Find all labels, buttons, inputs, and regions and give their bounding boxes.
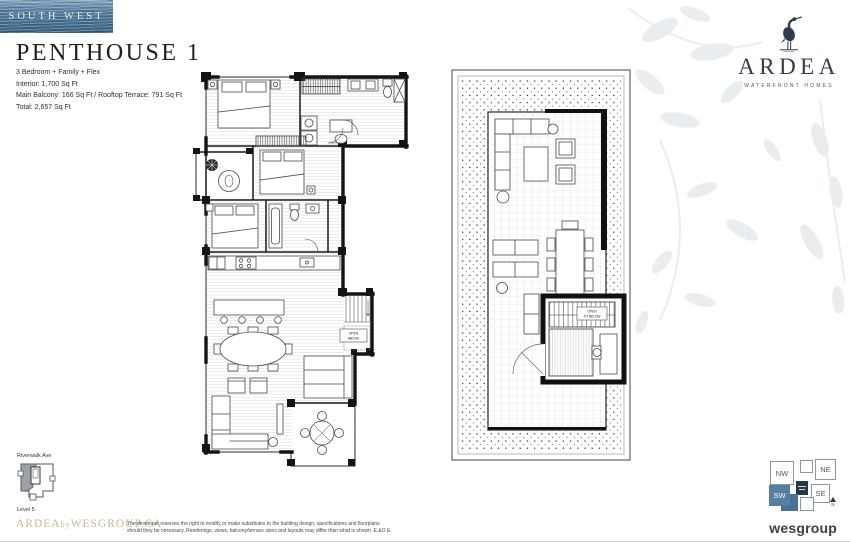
spec-bedrooms: 3 Bedroom + Family + Flex <box>16 67 182 79</box>
disclaimer: The developer reserves the right to modi… <box>127 521 407 535</box>
building-small-south <box>800 497 814 511</box>
page-title: PENTHOUSE 1 <box>16 40 202 67</box>
unit-specs: 3 Bedroom + Family + Flex Interior: 1,70… <box>16 67 182 113</box>
brand-tagline: WATERFRONT HOMES <box>728 83 850 89</box>
open-to-below-label-1: OPEN <box>587 310 597 314</box>
disclaimer-line-1: The developer reserves the right to modi… <box>127 521 407 528</box>
disclaimer-line-2: should they be necessary. Renderings, vi… <box>127 528 407 535</box>
building-ne: NE <box>815 459 836 480</box>
brochure-page: SOUTH WEST PENTHOUSE 1 3 Bedroom + Famil… <box>0 0 850 550</box>
spec-balcony-terrace: Main Balcony: 166 Sq Ft / Rooftop Terrac… <box>16 90 182 102</box>
site-center-block <box>796 481 808 495</box>
keyplan-street-label: Riverwalk Ave <box>17 453 87 459</box>
website-by: by <box>61 520 71 529</box>
website-brand: ARDEA <box>16 518 61 530</box>
bed-master-icon <box>208 80 280 128</box>
heron-icon <box>774 14 804 52</box>
developer-logo: wesgroup <box>769 520 837 536</box>
bed3-icon <box>206 204 258 248</box>
brand-logo: ARDEA WATERFRONT HOMES <box>728 14 850 89</box>
building-small-north <box>800 460 813 473</box>
building-sw-active: SW <box>769 485 790 506</box>
spec-interior: Interior: 1,700 Sq Ft <box>16 79 182 91</box>
open-above-label-2: ABOVE <box>348 337 360 341</box>
keyplan-map <box>17 461 57 503</box>
southwest-banner: SOUTH WEST <box>0 0 113 33</box>
north-marker: N <box>828 497 838 507</box>
site-compass: NW NE SW SE N <box>758 454 842 514</box>
open-to-below-label-2: TO BELOW <box>584 315 601 319</box>
spec-total: Total: 2,657 Sq Ft <box>16 102 182 114</box>
brand-name: ARDEA <box>728 54 850 80</box>
building-nw: NW <box>770 461 794 485</box>
keyplan-level-label: Level 5 <box>17 507 87 513</box>
open-above-label-1: OPEN <box>349 332 359 336</box>
footer-divider <box>0 541 850 542</box>
closet-icon <box>302 79 340 94</box>
rooftop-floorplan: OPEN TO BELOW <box>452 70 630 460</box>
main-floorplan: OPEN ABOVE <box>193 72 407 466</box>
keyplan: Riverwalk Ave Level 5 <box>17 453 87 513</box>
floorplans: OPEN ABOVE <box>180 58 650 473</box>
north-label: N <box>828 502 838 507</box>
banner-label: SOUTH WEST <box>8 11 104 22</box>
